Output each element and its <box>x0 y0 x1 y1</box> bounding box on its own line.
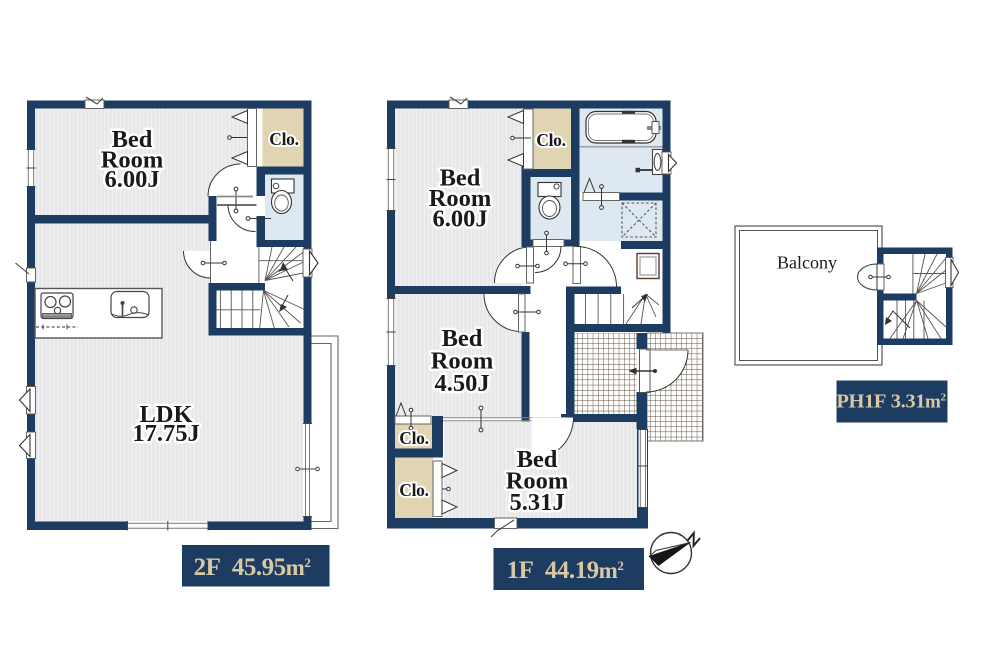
svg-text:Clo.: Clo. <box>536 130 565 150</box>
svg-text:4.50J: 4.50J <box>434 370 489 397</box>
svg-text:Clo.: Clo. <box>399 480 428 500</box>
svg-text:Clo.: Clo. <box>399 428 428 448</box>
svg-text:6.00J: 6.00J <box>432 206 487 233</box>
svg-text:1F 44.19m2: 1F 44.19m2 <box>507 557 624 584</box>
svg-text:2F 45.95m2: 2F 45.95m2 <box>194 554 311 581</box>
svg-text:Clo.: Clo. <box>269 129 298 149</box>
svg-text:17.75J: 17.75J <box>132 420 199 447</box>
svg-text:6.00J: 6.00J <box>104 166 159 193</box>
svg-text:5.31J: 5.31J <box>509 489 564 516</box>
svg-text:PH1F 3.31m2: PH1F 3.31m2 <box>836 391 946 413</box>
svg-text:Balcony: Balcony <box>777 253 837 273</box>
